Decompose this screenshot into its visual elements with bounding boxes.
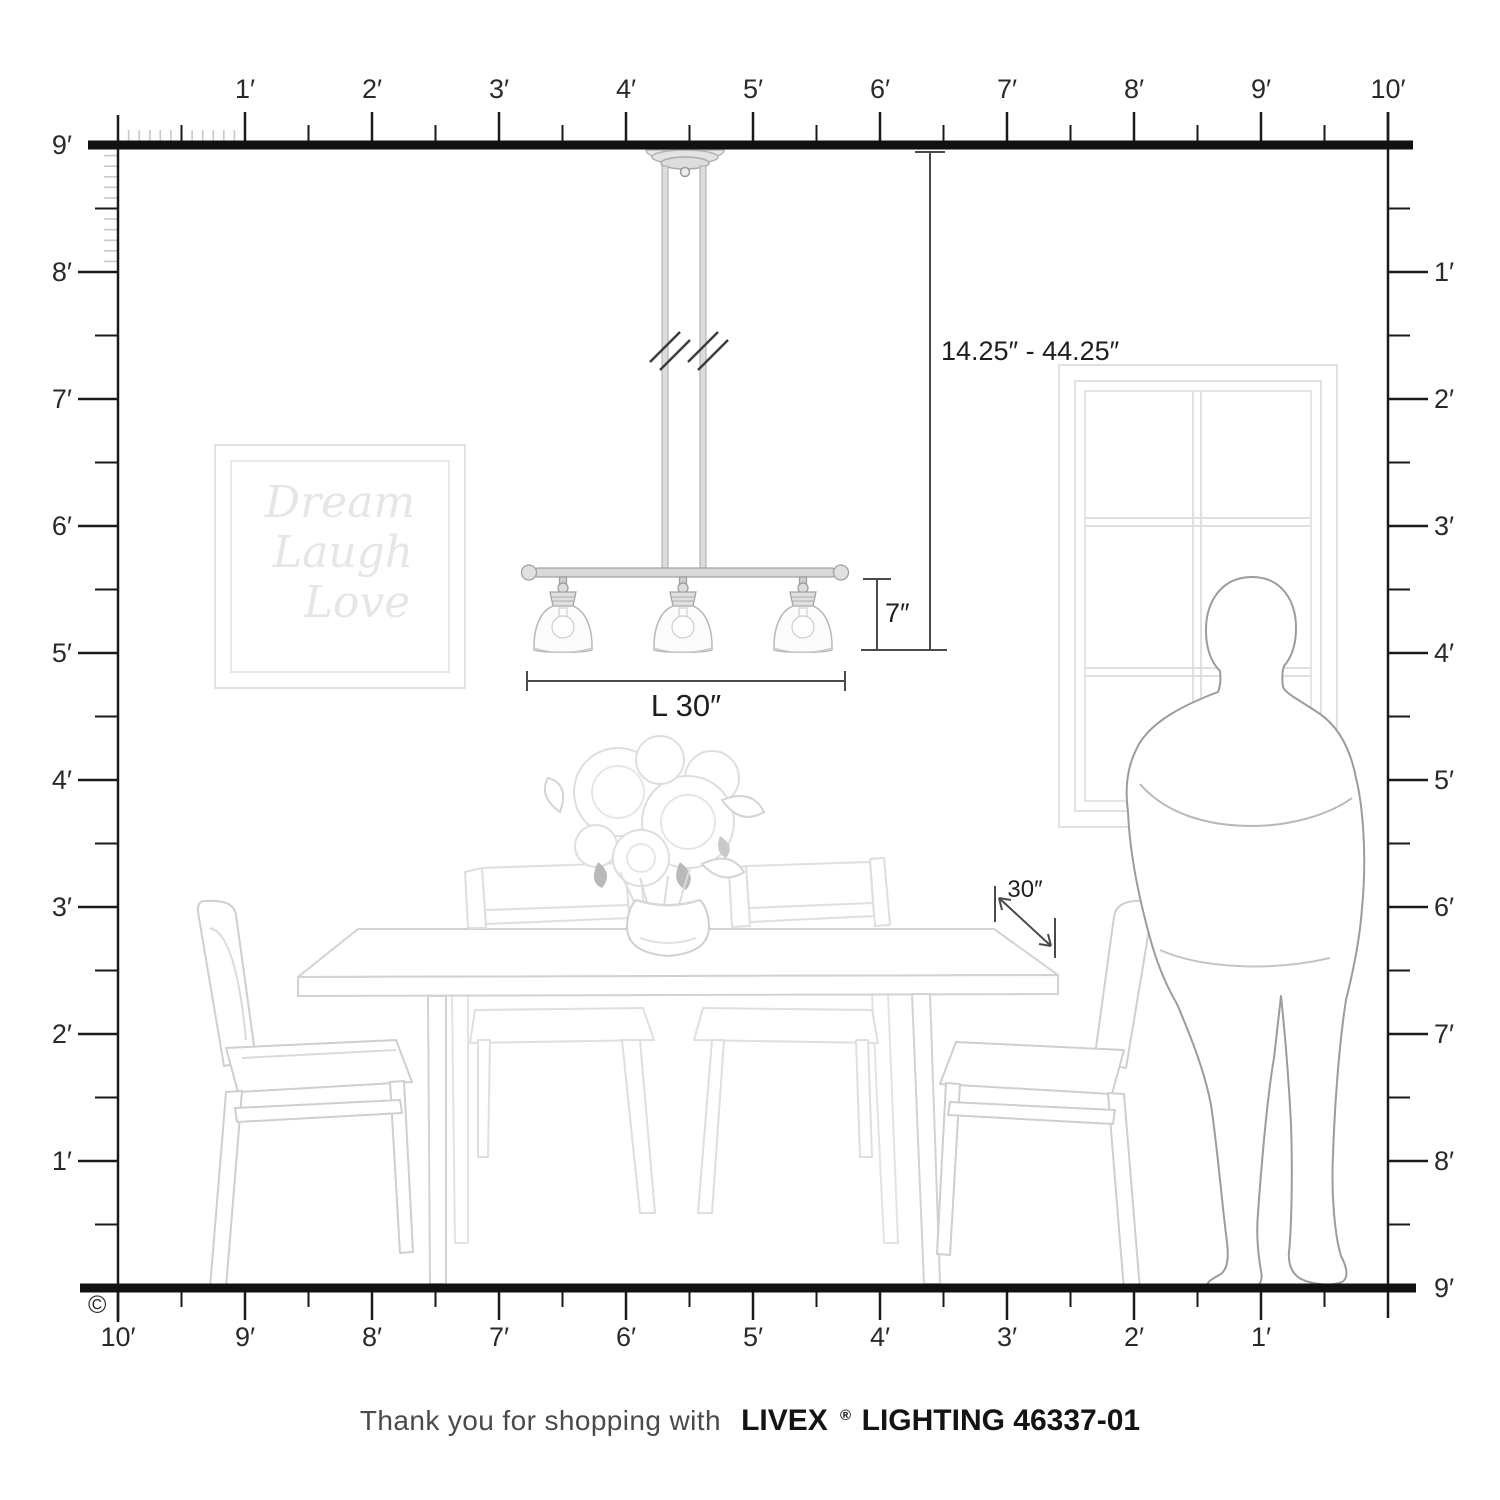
wall-art-word: Laugh bbox=[221, 528, 465, 578]
ruler-label: 5′ bbox=[718, 74, 788, 104]
ruler-label: 7′ bbox=[464, 1322, 534, 1352]
ruler-label: 3′ bbox=[1434, 511, 1494, 541]
left-half-ticks bbox=[95, 209, 118, 1225]
product-number: LIGHTING 46337-01 bbox=[862, 1404, 1140, 1437]
ceiling-canopy bbox=[646, 150, 724, 177]
hang-range-label: 14.25″ - 44.25″ bbox=[941, 336, 1119, 367]
table-clearance-label: 30″ bbox=[993, 876, 1057, 904]
registered-mark: ® bbox=[840, 1407, 851, 1424]
ruler-label: 8′ bbox=[28, 257, 72, 287]
ruler-label: 7′ bbox=[972, 74, 1042, 104]
ruler-label: 8′ bbox=[1099, 74, 1169, 104]
ruler-label: 1′ bbox=[28, 1146, 72, 1176]
ruler-label: 6′ bbox=[1434, 892, 1494, 922]
fixture-length-label: L 30″ bbox=[606, 688, 766, 724]
brand-name: LIVEX bbox=[741, 1404, 828, 1437]
ruler-label: 1′ bbox=[1226, 1322, 1296, 1352]
ruler-label: 8′ bbox=[337, 1322, 407, 1352]
ruler-label: 10′ bbox=[1353, 74, 1423, 104]
ruler-label: 3′ bbox=[28, 892, 72, 922]
ruler-label: 1′ bbox=[210, 74, 280, 104]
ruler-label: 4′ bbox=[28, 765, 72, 795]
footer-line: Thank you for shopping with LIVEX ® LIGH… bbox=[0, 1404, 1500, 1438]
ruler-label: 3′ bbox=[464, 74, 534, 104]
ruler-label: 6′ bbox=[845, 74, 915, 104]
ruler-label: 7′ bbox=[1434, 1019, 1494, 1049]
ruler-label: 2′ bbox=[1099, 1322, 1169, 1352]
pendant-light bbox=[522, 150, 849, 653]
copyright-mark: © bbox=[88, 1291, 106, 1320]
ruler-label: 2′ bbox=[1434, 384, 1494, 414]
hang-range-line bbox=[915, 152, 945, 650]
footer-thanks-text: Thank you for shopping with bbox=[360, 1405, 721, 1436]
ruler-label: 8′ bbox=[1434, 1146, 1494, 1176]
ruler-label: 5′ bbox=[718, 1322, 788, 1352]
ruler-label: 9′ bbox=[1434, 1273, 1494, 1303]
ruler-label: 9′ bbox=[28, 130, 72, 160]
diagram-lineart bbox=[0, 0, 1500, 1500]
ruler-label: 6′ bbox=[591, 1322, 661, 1352]
glass-shades bbox=[534, 577, 832, 653]
ruler-label: 2′ bbox=[337, 74, 407, 104]
ruler-label: 9′ bbox=[210, 1322, 280, 1352]
ruler-label: 1′ bbox=[1434, 257, 1494, 287]
fixture-height-label: 7″ bbox=[885, 598, 910, 629]
ruler-label: 4′ bbox=[845, 1322, 915, 1352]
wall-art-word: Love bbox=[249, 578, 465, 628]
ruler-label: 10′ bbox=[83, 1322, 153, 1352]
ruler-label: 4′ bbox=[1434, 638, 1494, 668]
wall-art-text: Dream Laugh Love bbox=[215, 478, 465, 628]
right-half-ticks bbox=[1388, 209, 1410, 1225]
dimension-diagram: 1′2′3′4′5′6′7′8′9′10′ 10′9′8′7′6′5′4′3′2… bbox=[0, 0, 1500, 1500]
ruler-label: 5′ bbox=[28, 638, 72, 668]
ruler-label: 6′ bbox=[28, 511, 72, 541]
person-silhouette bbox=[1127, 577, 1365, 1289]
ruler-label: 7′ bbox=[28, 384, 72, 414]
ruler-label: 9′ bbox=[1226, 74, 1296, 104]
wall-art-word: Dream bbox=[215, 478, 465, 528]
ruler-label: 5′ bbox=[1434, 765, 1494, 795]
ruler-label: 3′ bbox=[972, 1322, 1042, 1352]
ruler-label: 4′ bbox=[591, 74, 661, 104]
ruler-label: 2′ bbox=[28, 1019, 72, 1049]
